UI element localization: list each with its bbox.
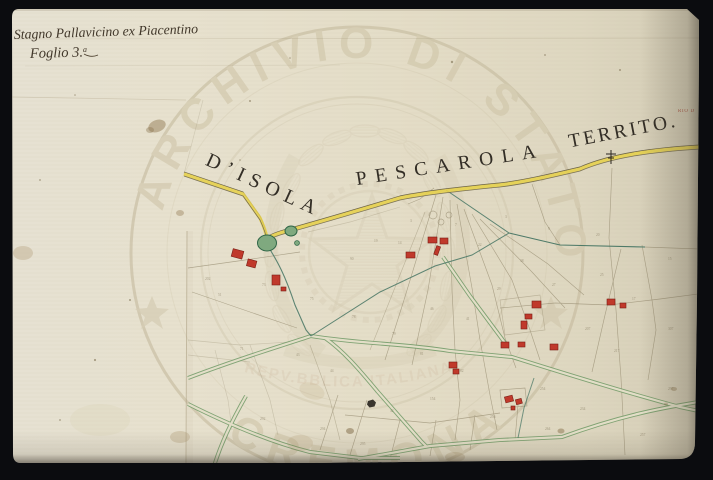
- svg-text:81: 81: [420, 352, 424, 356]
- svg-text:42: 42: [390, 409, 394, 413]
- svg-text:90: 90: [350, 257, 354, 261]
- svg-text:3: 3: [410, 219, 412, 223]
- svg-text:44: 44: [330, 369, 334, 373]
- svg-text:43: 43: [296, 353, 300, 357]
- svg-text:3: 3: [505, 215, 507, 219]
- svg-text:292: 292: [260, 417, 266, 421]
- svg-text:234: 234: [580, 407, 586, 411]
- svg-text:71: 71: [240, 347, 244, 351]
- svg-text:9: 9: [548, 227, 550, 231]
- svg-text:78: 78: [352, 315, 356, 319]
- svg-text:14: 14: [398, 241, 402, 245]
- svg-text:29: 29: [497, 287, 501, 291]
- svg-text:256: 256: [490, 415, 496, 419]
- svg-text:17: 17: [632, 297, 636, 301]
- svg-text:82: 82: [460, 369, 464, 373]
- svg-text:46: 46: [430, 307, 434, 311]
- svg-text:75: 75: [310, 297, 314, 301]
- svg-text:27: 27: [552, 283, 556, 287]
- svg-text:38: 38: [520, 259, 524, 263]
- svg-text:7: 7: [455, 223, 457, 227]
- svg-text:217: 217: [614, 349, 620, 353]
- svg-text:19: 19: [374, 239, 378, 243]
- svg-text:25: 25: [600, 273, 604, 277]
- svg-text:22: 22: [478, 243, 482, 247]
- svg-text:202: 202: [205, 277, 211, 281]
- svg-text:207: 207: [585, 327, 591, 331]
- svg-text:73: 73: [262, 283, 266, 287]
- svg-text:79: 79: [392, 332, 396, 336]
- svg-text:154: 154: [430, 397, 436, 401]
- svg-text:41: 41: [466, 317, 470, 321]
- svg-text:254: 254: [540, 387, 546, 391]
- svg-text:20: 20: [596, 233, 600, 237]
- svg-text:Foglio 3.a: Foglio 3.a: [29, 44, 88, 62]
- svg-text:51: 51: [218, 293, 222, 297]
